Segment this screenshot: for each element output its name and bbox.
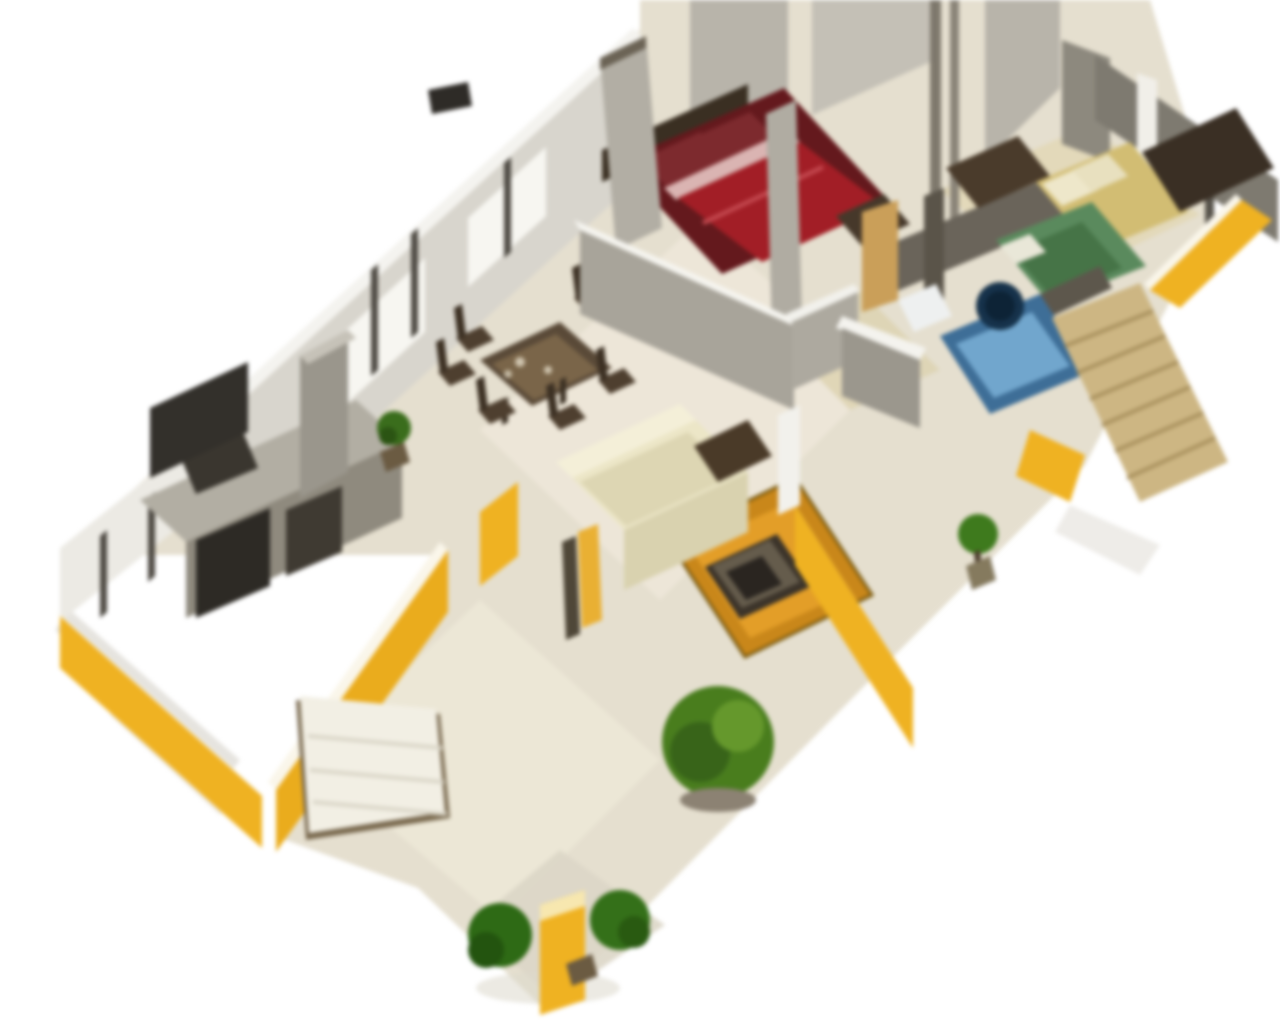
floorplan-scene-wrapper <box>0 0 1280 1024</box>
dining-dish-2 <box>544 366 552 374</box>
wall-master-right <box>766 100 802 334</box>
dining-dish-1 <box>515 357 525 367</box>
dining-plant-foliage-dark <box>379 427 397 445</box>
terrace-door-yellow <box>578 524 602 628</box>
shadow-stairs <box>1055 505 1160 575</box>
hall-door-tan <box>862 200 898 312</box>
wall-item-dark-topleft <box>428 82 472 114</box>
tip-shrub-1-dark <box>468 932 504 968</box>
window-post-3a <box>100 530 107 618</box>
tip-shrub-2-dark <box>618 916 650 948</box>
floorplan-svg <box>0 0 1280 1024</box>
wall-living-white-post <box>778 405 800 515</box>
window-mullion-1b <box>411 228 418 338</box>
dining-dish-3 <box>504 370 512 378</box>
floorplan-render <box>0 0 1280 1024</box>
stair-plant-foliage <box>958 514 998 554</box>
shrub-large-pot <box>680 788 756 812</box>
window-mullion-2 <box>504 157 511 258</box>
window-mullion-1a <box>371 264 378 376</box>
wall-yellow-left-face <box>60 616 262 848</box>
shrub-large-light <box>712 700 764 752</box>
wall-yellow-left-cap <box>52 608 262 796</box>
wall-post-2 <box>950 0 959 228</box>
dining-table-leg-2 <box>560 377 566 405</box>
bath-basin-inner <box>985 291 1015 321</box>
